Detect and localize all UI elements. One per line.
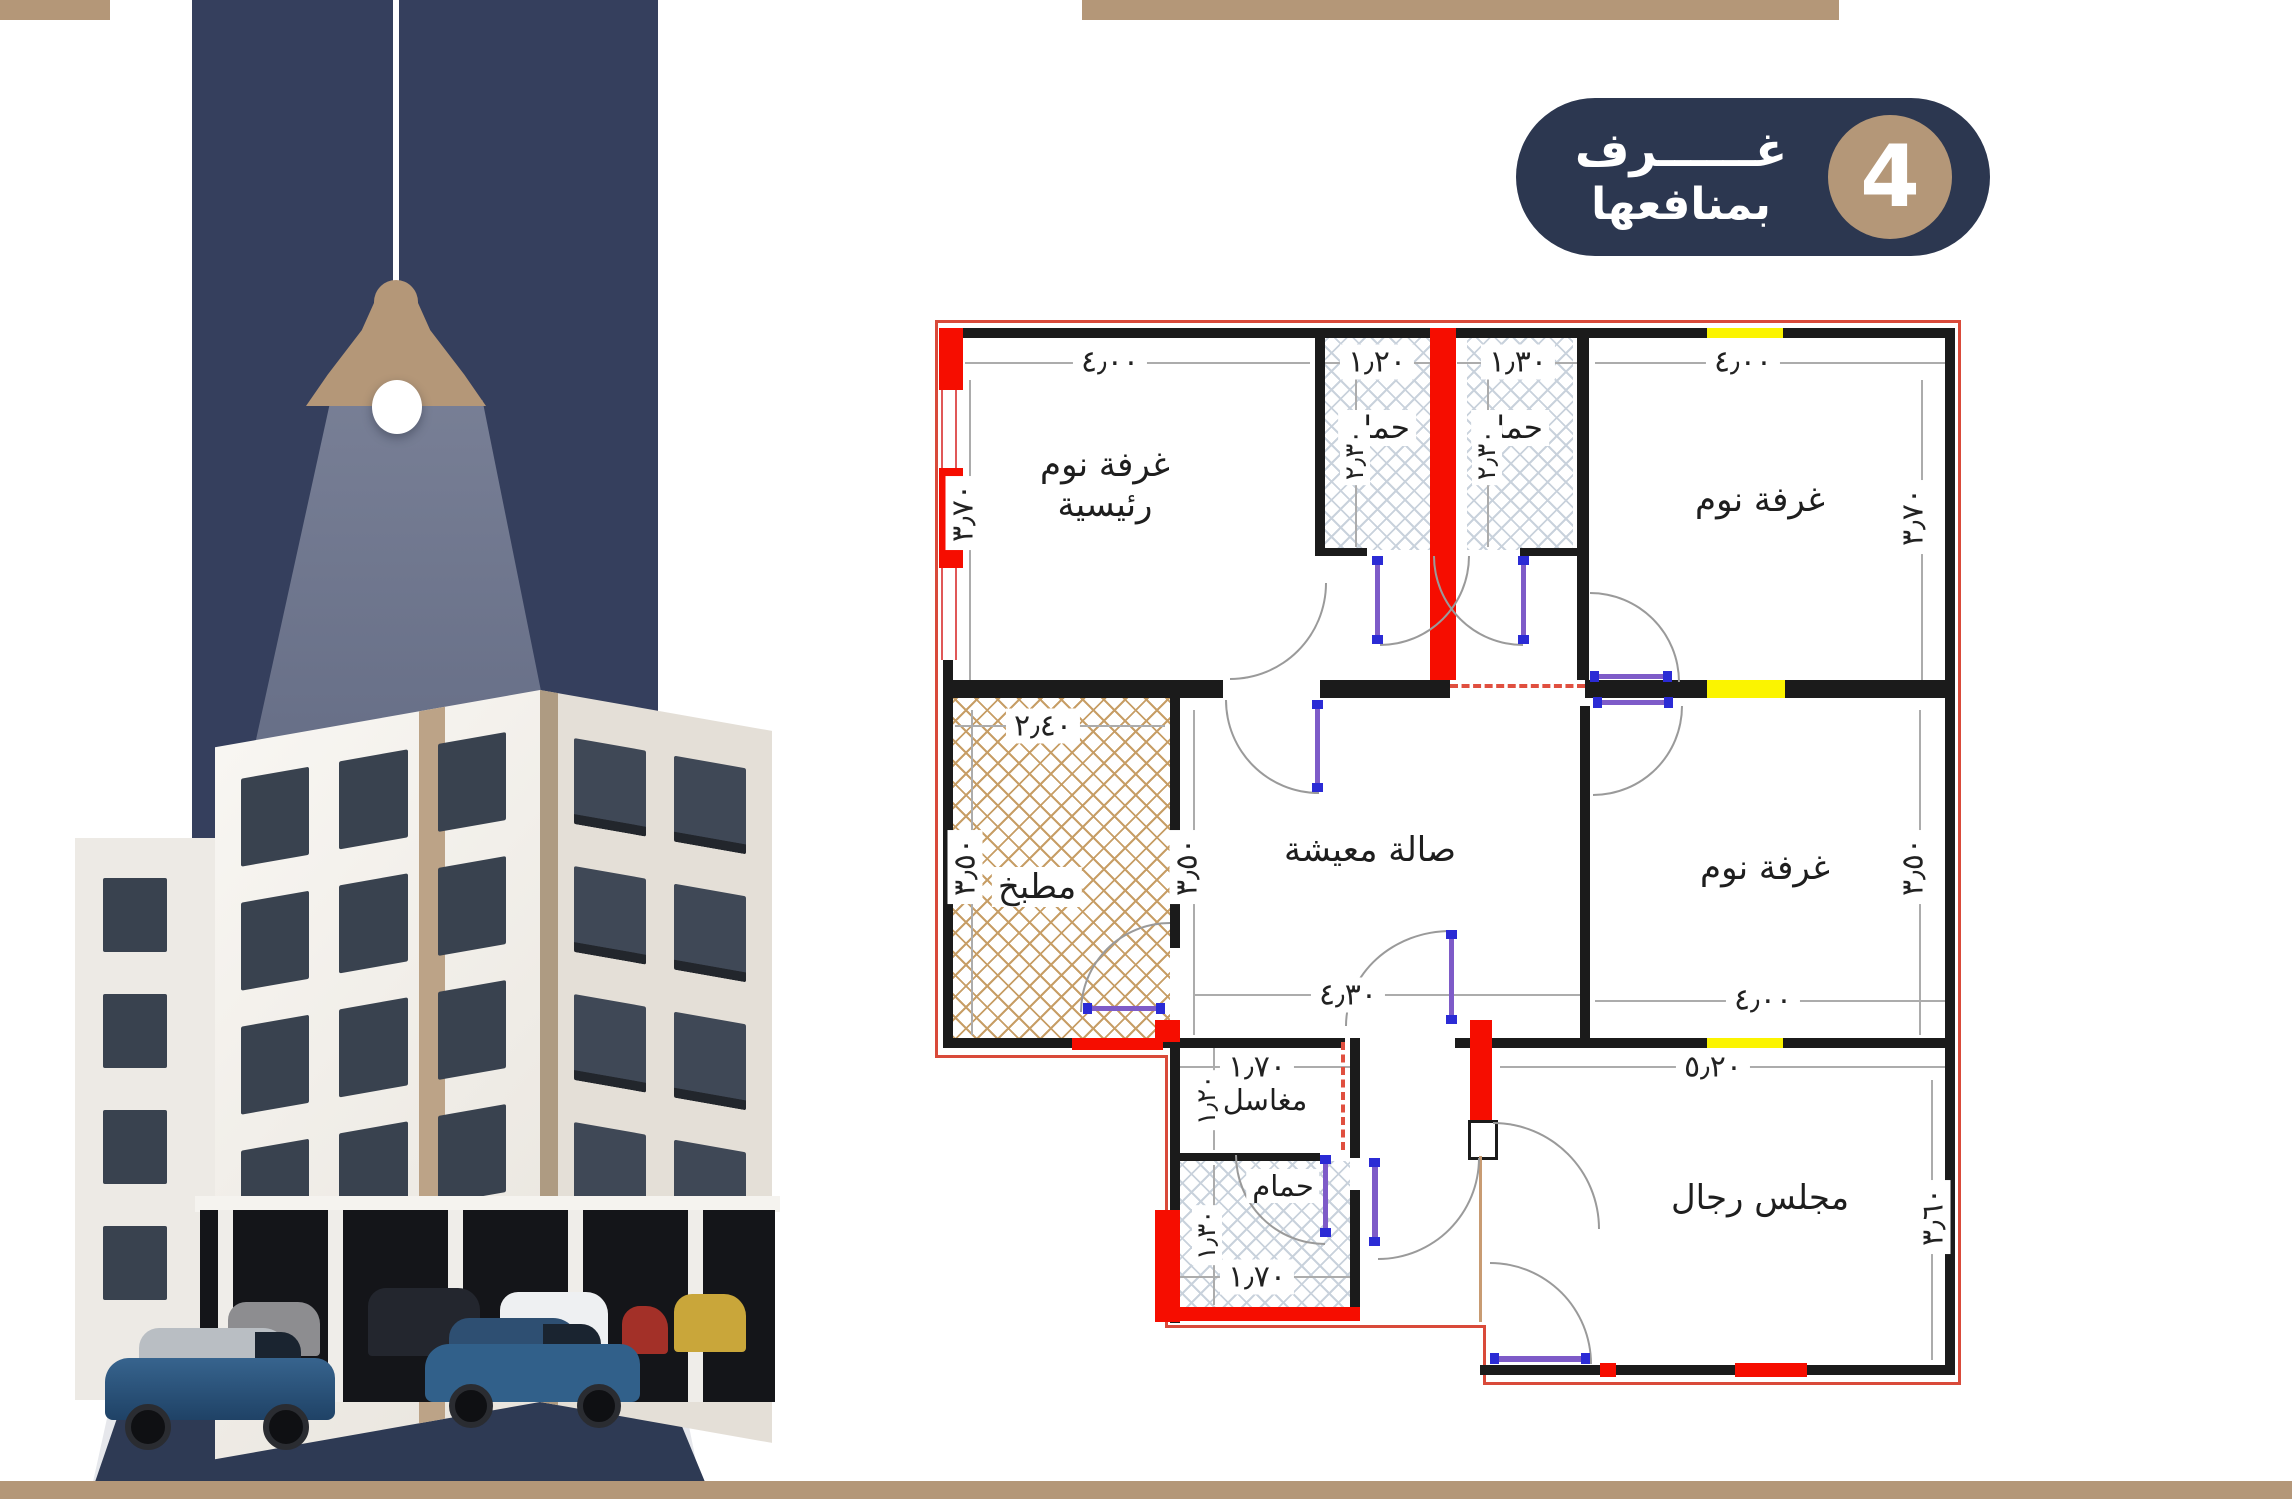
- wall: [1577, 328, 1589, 680]
- plan-outline: [935, 320, 1961, 323]
- car-blue-suv-left: [105, 1328, 335, 1450]
- red-wall-segment: [1155, 1210, 1180, 1322]
- door-leaf: [1375, 556, 1380, 644]
- dim-majlis-right: ٣٫٦٠: [1916, 1180, 1951, 1254]
- red-wall-segment: [1735, 1363, 1807, 1377]
- car-blue-suv-right: [425, 1318, 640, 1426]
- decor-bar-top-right: [1082, 0, 1839, 20]
- red-wall-segment: [1470, 1020, 1492, 1120]
- building-window: [574, 994, 646, 1093]
- building-window: [674, 1012, 746, 1111]
- room-label-mens-majlis: مجلس رجال: [1665, 1178, 1855, 1218]
- door-arc: [1378, 1158, 1480, 1260]
- dashed-opening: [1341, 1042, 1345, 1150]
- red-wall-segment: [1600, 1363, 1616, 1377]
- building-window: [574, 738, 646, 837]
- wall: [1520, 548, 1577, 556]
- building-window: [241, 891, 309, 991]
- plan-outline: [1483, 1325, 1486, 1385]
- building-window: [339, 749, 407, 849]
- dim-bath1-depth: ٢٫٣٠: [1340, 425, 1370, 485]
- door-arc: [1490, 1262, 1592, 1364]
- building-back-wing: [75, 838, 220, 1400]
- red-wall-segment: [939, 328, 963, 390]
- wall: [1315, 328, 1325, 556]
- lamp-bulb-icon: [372, 380, 422, 434]
- floor-plan: غرفة نوم رئيسية حمام حمام غرفة نوم مطبخ …: [925, 310, 2005, 1390]
- door-arc: [1230, 583, 1327, 680]
- building-window: [438, 856, 506, 956]
- dim-kitchen-top: ٢٫٤٠: [1006, 709, 1080, 744]
- room-label-master-bedroom: غرفة نوم رئيسية: [1034, 445, 1176, 525]
- dim-bathroom-bottom-width: ١٫٧٠: [1220, 1260, 1294, 1295]
- door-leaf: [1590, 674, 1672, 679]
- room-label-kitchen: مطبخ: [992, 867, 1082, 907]
- plan-outline: [935, 320, 938, 1058]
- wall: [1350, 1190, 1360, 1313]
- building-window: [103, 1226, 167, 1300]
- dim-living-left: ٣٫٥٠: [1170, 830, 1205, 904]
- badge-title-line2: بمنافعها: [1591, 181, 1771, 229]
- door-leaf: [1323, 1155, 1328, 1237]
- dim-master-left: ٣٫٧٠: [946, 476, 981, 550]
- wall: [1480, 1365, 1955, 1375]
- door-arc: [1593, 706, 1683, 796]
- dashed-opening: [1450, 684, 1585, 688]
- dim-majlis-top: ٥٫٢٠: [1676, 1050, 1750, 1085]
- wall: [1180, 1038, 1345, 1048]
- building-window: [103, 994, 167, 1068]
- dim-master-top: ٤٫٠٠: [1073, 345, 1147, 380]
- wall: [1170, 698, 1180, 948]
- plan-outline: [935, 1055, 1168, 1058]
- poster-canvas: غــــــرف بمنافعها 4: [0, 0, 2292, 1499]
- dim-kitchen-left: ٣٫٥٠: [948, 830, 983, 904]
- dim-bedroom-tr-right: ٣٫٧٠: [1896, 480, 1931, 554]
- badge-title: غــــــرف بمنافعها: [1536, 98, 1826, 256]
- wall: [1350, 1038, 1360, 1158]
- badge-number-circle: 4: [1828, 115, 1952, 239]
- building-window: [339, 997, 407, 1097]
- room-label-bathroom-bottom: حمام: [1246, 1169, 1319, 1203]
- plan-outline: [1958, 320, 1961, 1385]
- window-symbol: [941, 390, 957, 468]
- dim-bedroom-mr-right: ٣٫٥٠: [1896, 830, 1931, 904]
- building-window: [574, 866, 646, 965]
- door-leaf: [1593, 700, 1673, 705]
- dim-washbasins-top: ١٫٧٠: [1220, 1050, 1294, 1085]
- door-arc: [1493, 1122, 1600, 1229]
- building-window: [241, 767, 309, 867]
- dim-bedroom-tr-top: ٤٫٠٠: [1706, 345, 1780, 380]
- plan-outline: [1165, 1325, 1485, 1328]
- building-window: [674, 756, 746, 855]
- building-window: [674, 884, 746, 983]
- wall-thin: [1479, 1156, 1482, 1322]
- building-window: [103, 878, 167, 952]
- building-window: [339, 873, 407, 973]
- lamp-cord: [393, 0, 399, 288]
- plan-outline: [1483, 1382, 1961, 1385]
- red-wall-segment: [1072, 1038, 1163, 1050]
- building-window: [438, 1104, 506, 1204]
- dim-bathroom-bottom-left: ١٫٣٠: [1192, 1205, 1222, 1265]
- window-symbol: [941, 568, 957, 660]
- door-leaf: [1490, 1356, 1590, 1362]
- wall: [943, 680, 1223, 698]
- dim-washbasins-left: ١٫٢٠: [1192, 1070, 1222, 1130]
- door-leaf: [1315, 700, 1320, 792]
- dim-living-bottom: ٤٫٣٠: [1311, 978, 1385, 1013]
- door-leaf: [1521, 556, 1526, 644]
- door-leaf: [1372, 1158, 1378, 1246]
- building-window: [438, 732, 506, 832]
- room-label-bedroom-top-right: غرفة نوم: [1689, 480, 1831, 520]
- wall: [1320, 680, 1450, 698]
- badge-title-line1: غــــــرف: [1575, 125, 1787, 177]
- decor-bar-top-left: [0, 0, 110, 20]
- dim-bath2-depth: ٢٫٣٠: [1472, 425, 1502, 485]
- red-wall-segment: [1180, 1307, 1360, 1321]
- dim-bath1-top: ١٫٢٠: [1340, 345, 1414, 380]
- dim-bedroom-mr-bottom: ٤٫٠٠: [1726, 983, 1800, 1018]
- door-leaf: [1083, 1006, 1165, 1011]
- decor-bar-bottom: [0, 1481, 2292, 1499]
- room-label-washbasins: مغاسل: [1217, 1083, 1314, 1117]
- room-label-bedroom-middle-right: غرفة نوم: [1694, 848, 1836, 888]
- building-window: [438, 980, 506, 1080]
- door-arc: [1225, 700, 1319, 794]
- yellow-window-segment: [1707, 328, 1783, 338]
- red-wall-segment: [1155, 1020, 1180, 1042]
- yellow-window-segment: [1707, 1038, 1783, 1048]
- badge-number: 4: [1860, 127, 1920, 227]
- dim-bath2-top: ١٫٣٠: [1481, 345, 1555, 380]
- wall: [1315, 548, 1367, 556]
- room-label-living-hall: صالة معيشة: [1278, 830, 1462, 870]
- unit-count-badge: غــــــرف بمنافعها 4: [1516, 98, 1990, 256]
- parked-car-yellow-suv: [674, 1294, 746, 1352]
- wall: [1580, 706, 1590, 1038]
- door-arc: [1590, 592, 1680, 682]
- building-window: [241, 1015, 309, 1115]
- yellow-window-segment: [1707, 680, 1785, 698]
- building-window: [103, 1110, 167, 1184]
- door-leaf: [1449, 930, 1454, 1024]
